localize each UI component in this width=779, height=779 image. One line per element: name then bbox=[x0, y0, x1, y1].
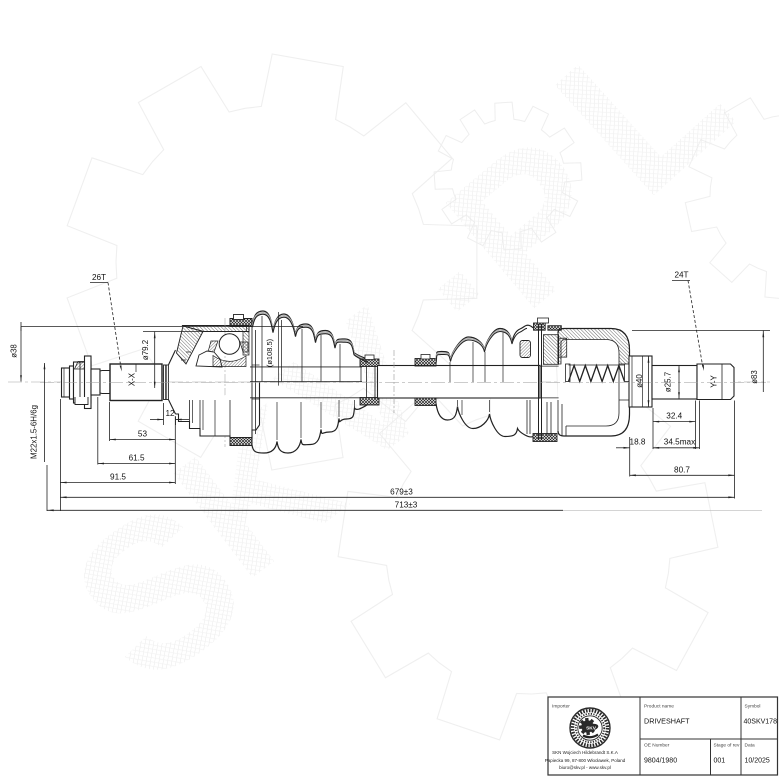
svg-text:X-X: X-X bbox=[128, 372, 137, 386]
svg-text:ø79.2: ø79.2 bbox=[141, 340, 150, 360]
svg-text:ø40: ø40 bbox=[635, 374, 644, 388]
svg-text:32.4: 32.4 bbox=[666, 412, 682, 421]
svg-text:ø83: ø83 bbox=[750, 370, 759, 384]
svg-text:Data: Data bbox=[745, 743, 755, 749]
svg-text:001: 001 bbox=[714, 758, 726, 765]
svg-text:Papiecka 99, 87-800 Włocławek,: Papiecka 99, 87-800 Włocławek, Poland bbox=[545, 758, 626, 763]
svg-text:biuro@skv.pl - www.skv.pl: biuro@skv.pl - www.skv.pl bbox=[559, 765, 611, 770]
svg-text:Product name: Product name bbox=[644, 704, 674, 710]
svg-text:12: 12 bbox=[165, 409, 175, 418]
svg-text:91.5: 91.5 bbox=[110, 473, 126, 482]
svg-text:SKN Wojciech Hildebrandt S.K.A: SKN Wojciech Hildebrandt S.K.A bbox=[552, 750, 618, 755]
svg-text:80.7: 80.7 bbox=[674, 465, 690, 474]
svg-text:ø25.7: ø25.7 bbox=[664, 372, 673, 392]
svg-text:53: 53 bbox=[138, 430, 148, 439]
svg-text:713±3: 713±3 bbox=[395, 500, 418, 509]
svg-text:Symbol: Symbol bbox=[745, 704, 761, 710]
svg-text:OE Number: OE Number bbox=[644, 743, 670, 749]
svg-text:Importer: Importer bbox=[552, 704, 570, 710]
svg-text:ø38: ø38 bbox=[10, 344, 19, 358]
svg-text:26T: 26T bbox=[92, 273, 106, 282]
svg-text:24T: 24T bbox=[674, 271, 688, 280]
svg-text:Stage of rev: Stage of rev bbox=[714, 743, 740, 749]
svg-text:Y-Y: Y-Y bbox=[710, 375, 719, 388]
svg-text:DRIVESHAFT: DRIVESHAFT bbox=[644, 717, 690, 726]
svg-text:34.5max: 34.5max bbox=[664, 438, 695, 447]
svg-text:9804/1980: 9804/1980 bbox=[644, 758, 677, 765]
svg-text:40SKV178: 40SKV178 bbox=[744, 719, 778, 726]
svg-text:SKV: SKV bbox=[586, 726, 597, 732]
svg-text:(ø108.5): (ø108.5) bbox=[265, 338, 274, 367]
svg-text:679±3: 679±3 bbox=[390, 487, 413, 496]
svg-text:10/2025: 10/2025 bbox=[745, 758, 770, 765]
svg-text:61.5: 61.5 bbox=[129, 454, 145, 463]
svg-text:M22x1.5-6H/6g: M22x1.5-6H/6g bbox=[30, 405, 39, 459]
svg-text:18.8: 18.8 bbox=[630, 438, 646, 447]
